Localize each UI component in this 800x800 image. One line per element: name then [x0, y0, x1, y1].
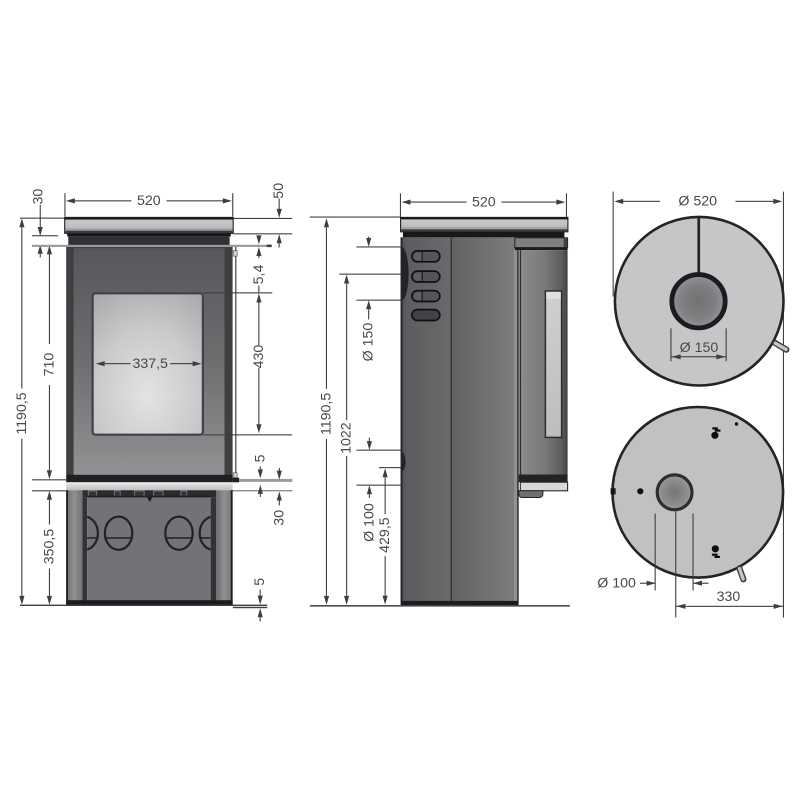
- svg-text:1022: 1022: [339, 422, 355, 454]
- svg-text:430: 430: [251, 345, 267, 369]
- svg-text:Ø 150: Ø 150: [680, 340, 719, 356]
- svg-text:30: 30: [31, 189, 47, 205]
- svg-text:30: 30: [271, 510, 287, 526]
- svg-text:520: 520: [137, 193, 161, 209]
- svg-text:330: 330: [717, 589, 741, 605]
- svg-text:Ø 100: Ø 100: [361, 503, 377, 542]
- svg-text:520: 520: [472, 194, 496, 210]
- svg-text:Ø 150: Ø 150: [361, 323, 377, 362]
- svg-text:1190,5: 1190,5: [319, 393, 335, 435]
- svg-text:337,5: 337,5: [132, 356, 168, 372]
- svg-text:50: 50: [271, 183, 287, 199]
- svg-text:5,4: 5,4: [251, 265, 267, 285]
- svg-text:Ø 520: Ø 520: [678, 194, 717, 210]
- svg-text:1190,5: 1190,5: [14, 392, 30, 434]
- svg-text:Ø 100: Ø 100: [597, 576, 636, 592]
- svg-text:710: 710: [41, 353, 57, 377]
- svg-text:350,5: 350,5: [41, 529, 57, 565]
- svg-text:5: 5: [252, 578, 268, 586]
- svg-text:5: 5: [252, 454, 268, 462]
- svg-text:429,5: 429,5: [377, 517, 393, 553]
